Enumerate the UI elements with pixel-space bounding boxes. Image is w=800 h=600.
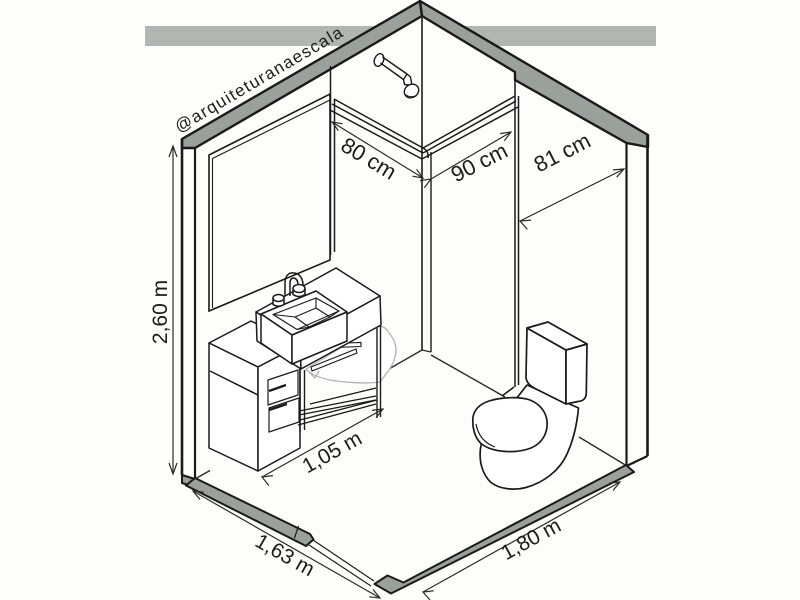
svg-text:2,60 m: 2,60 m <box>149 280 172 344</box>
